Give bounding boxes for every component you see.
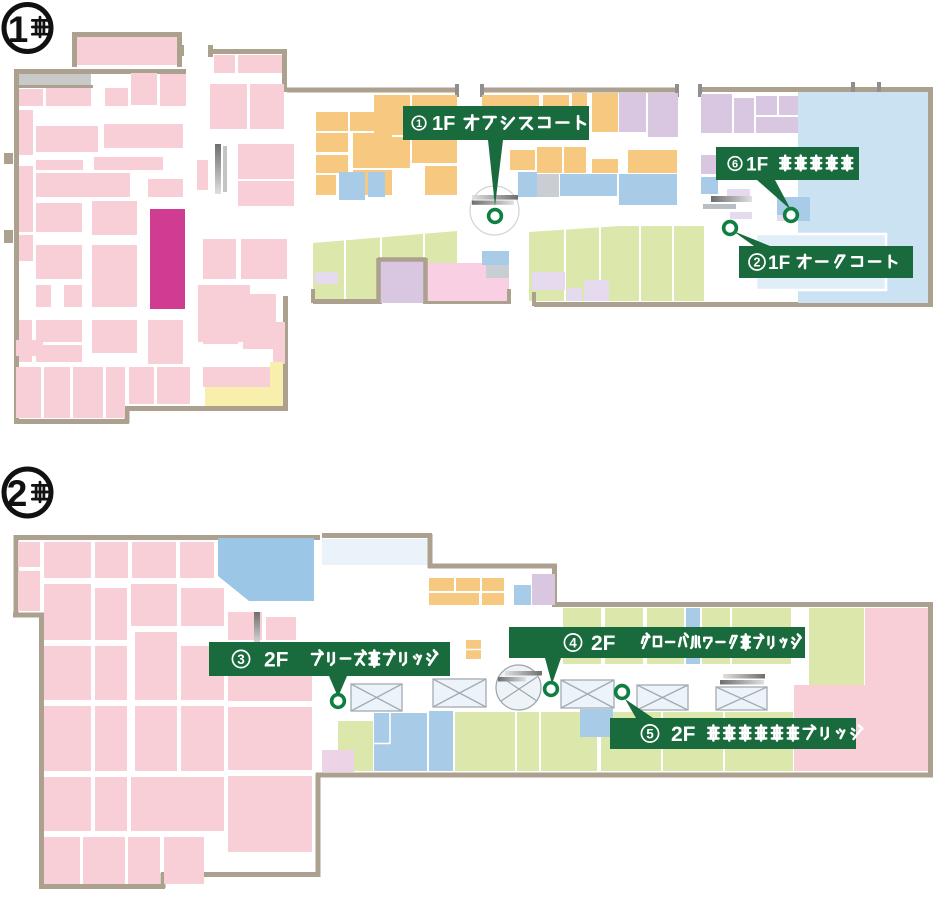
svg-text:2: 2 bbox=[754, 256, 761, 270]
svg-text:1F: 1F bbox=[432, 113, 455, 135]
svg-text:1F: 1F bbox=[746, 154, 768, 175]
svg-text:4: 4 bbox=[569, 635, 577, 650]
svg-text:2F: 2F bbox=[591, 632, 616, 655]
svg-text:1: 1 bbox=[416, 118, 422, 130]
svg-text:2F: 2F bbox=[671, 723, 696, 746]
svg-text:6: 6 bbox=[732, 158, 738, 170]
svg-text:2: 2 bbox=[7, 473, 28, 514]
svg-text:1: 1 bbox=[8, 9, 29, 50]
svg-text:5: 5 bbox=[646, 726, 654, 741]
svg-text:3: 3 bbox=[237, 652, 245, 667]
svg-text:2F: 2F bbox=[264, 649, 289, 672]
svg-text:1F: 1F bbox=[768, 253, 790, 274]
